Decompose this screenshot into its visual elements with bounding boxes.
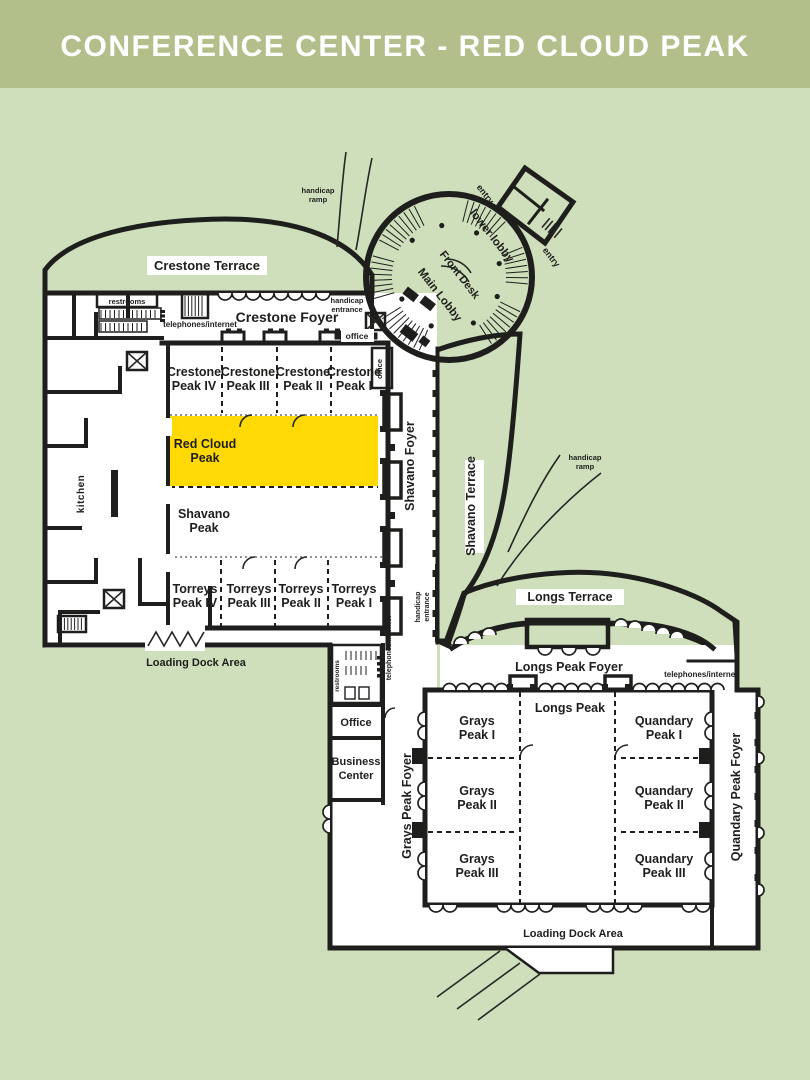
- telephones-top-label: telephones/internet: [163, 320, 237, 329]
- svg-text:Grays: Grays: [459, 714, 494, 728]
- handicap-entrance-top-label: handicap entrance: [331, 296, 364, 314]
- svg-text:Peak IV: Peak IV: [172, 379, 217, 393]
- svg-text:Red Cloud: Red Cloud: [174, 437, 237, 451]
- svg-text:ramp: ramp: [576, 462, 595, 471]
- kitchen-label: kitchen: [76, 475, 87, 514]
- quandary-peak-foyer-label: Quandary Peak Foyer: [729, 733, 743, 862]
- longs-terrace-label: Longs Terrace: [527, 590, 612, 604]
- svg-text:Grays: Grays: [459, 852, 494, 866]
- svg-text:entrance: entrance: [424, 592, 431, 621]
- svg-text:Quandary: Quandary: [635, 714, 693, 728]
- loading-dock-fill: [330, 800, 758, 948]
- svg-text:Center: Center: [339, 770, 375, 782]
- svg-text:Peak IV: Peak IV: [173, 596, 218, 610]
- svg-text:Crestone: Crestone: [167, 365, 221, 379]
- crestone-foyer-label: Crestone Foyer: [236, 309, 339, 325]
- svg-text:handicap: handicap: [569, 453, 602, 462]
- svg-text:entrance: entrance: [331, 305, 362, 314]
- office-small-top-label: office: [346, 331, 369, 341]
- page-title: CONFERENCE CENTER - RED CLOUD PEAK: [60, 30, 749, 63]
- kitchen-wall-bar: [111, 470, 118, 517]
- svg-text:handicap: handicap: [302, 186, 335, 195]
- svg-text:Crestone: Crestone: [276, 365, 330, 379]
- restrooms-top-label: restrooms: [109, 297, 146, 306]
- office-small-side-label: office: [375, 359, 384, 379]
- svg-text:handicap: handicap: [415, 592, 422, 623]
- grays-peak-foyer-label: Grays Peak Foyer: [400, 753, 414, 859]
- shavano-foyer-label: Shavano Foyer: [403, 421, 417, 511]
- loading-dock-left-label: Loading Dock Area: [146, 657, 247, 669]
- svg-text:Grays: Grays: [459, 784, 494, 798]
- svg-text:Business: Business: [332, 756, 381, 768]
- longs-peak-label: Longs Peak: [535, 701, 605, 715]
- svg-text:Crestone: Crestone: [327, 365, 381, 379]
- loading-dock-bottom-label: Loading Dock Area: [523, 928, 624, 940]
- grays-room-labels: GraysPeak I GraysPeak II GraysPeak III: [455, 714, 498, 880]
- svg-text:Peak III: Peak III: [226, 379, 269, 393]
- svg-text:Peak III: Peak III: [455, 866, 498, 880]
- svg-text:Peak III: Peak III: [227, 596, 270, 610]
- svg-text:Torreys: Torreys: [173, 582, 218, 596]
- svg-text:Peak I: Peak I: [459, 728, 495, 742]
- svg-text:Peak III: Peak III: [642, 866, 685, 880]
- longs-peak-foyer-label: Longs Peak Foyer: [515, 660, 623, 674]
- svg-text:Quandary: Quandary: [635, 852, 693, 866]
- svg-text:Quandary: Quandary: [635, 784, 693, 798]
- svg-text:ramp: ramp: [309, 195, 328, 204]
- svg-text:Peak I: Peak I: [646, 728, 682, 742]
- svg-text:Torreys: Torreys: [279, 582, 324, 596]
- svg-text:Peak I: Peak I: [336, 596, 372, 610]
- svg-text:Torreys: Torreys: [227, 582, 272, 596]
- svg-text:Peak: Peak: [189, 521, 218, 535]
- floorplan-svg: CONFERENCE CENTER - RED CLOUD PEAK: [0, 0, 810, 1080]
- restrooms-mid-label: restrooms: [334, 660, 341, 692]
- svg-text:Torreys: Torreys: [332, 582, 377, 596]
- shavano-terrace-label: Shavano Terrace: [464, 456, 478, 556]
- svg-text:Peak II: Peak II: [283, 379, 323, 393]
- svg-text:Peak II: Peak II: [281, 596, 321, 610]
- svg-text:Peak I: Peak I: [336, 379, 372, 393]
- svg-text:Crestone: Crestone: [221, 365, 275, 379]
- svg-text:Peak II: Peak II: [644, 798, 684, 812]
- svg-text:Peak: Peak: [190, 451, 219, 465]
- svg-text:handicap: handicap: [331, 296, 364, 305]
- floorplan-page: CONFERENCE CENTER - RED CLOUD PEAK: [0, 0, 810, 1080]
- office-label: Office: [340, 717, 371, 729]
- loading-door: [145, 625, 205, 651]
- telephones-mid-label: telephones/internet: [386, 615, 393, 680]
- svg-text:Peak II: Peak II: [457, 798, 497, 812]
- telephones-right-label: telephones/internet: [664, 670, 738, 679]
- svg-text:Shavano: Shavano: [178, 507, 230, 521]
- crestone-terrace-label: Crestone Terrace: [154, 258, 260, 273]
